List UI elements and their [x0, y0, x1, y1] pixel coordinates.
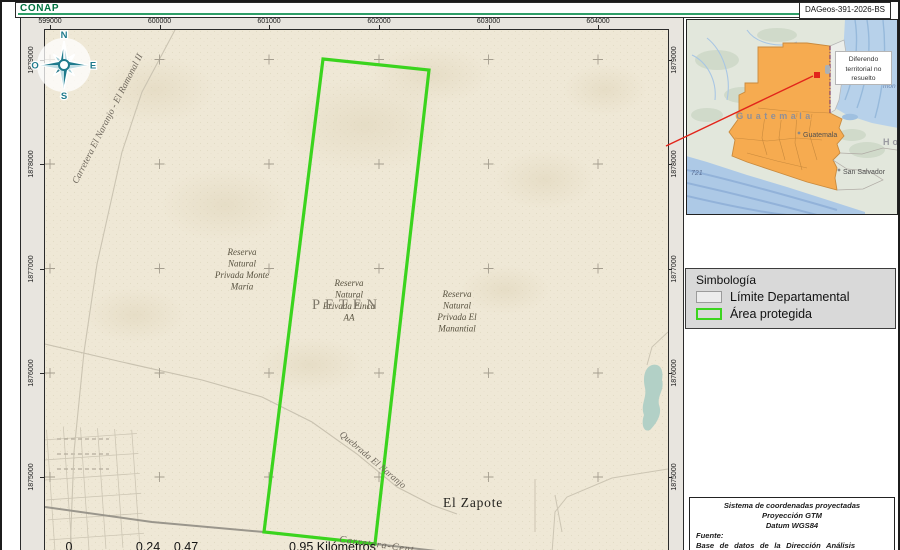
compass-s: S — [61, 91, 67, 102]
y-tick-label-right: 1875000 — [671, 455, 679, 499]
inset-san-salvador-label: San Salvador — [843, 169, 886, 176]
y-tick-label-right: 1876000 — [671, 351, 679, 395]
inset-depth-label: 721 — [691, 170, 703, 177]
site-marker — [814, 72, 820, 78]
crs-title: Sistema de coordenadas proyectadas — [696, 501, 888, 511]
border-marker-icon — [825, 65, 830, 74]
scale-047: 0.47 — [174, 540, 198, 550]
y-tick-label-left: 1875000 — [28, 455, 36, 499]
legend-item-label: Área protegida — [730, 307, 812, 321]
y-tick-label-right: 1877000 — [671, 247, 679, 291]
x-tick-label: 603000 — [467, 18, 511, 25]
compass-o: O — [31, 61, 38, 72]
protected-area-swatch — [696, 308, 722, 320]
x-tick-label: 602000 — [357, 18, 401, 25]
callout-line: territorial no — [836, 65, 891, 75]
label-department-peten: PETÉN — [312, 296, 382, 313]
legend-item-area-protegida: Área protegida — [696, 307, 895, 321]
x-tick-label: 599000 — [28, 18, 72, 25]
source-text: Base de datos de la Dirección Análisis G… — [696, 541, 888, 550]
scale-095-km: 0.95 Kilómetros — [289, 540, 376, 550]
x-tick-label: 601000 — [247, 18, 291, 25]
y-tick-label-left: 1877000 — [28, 247, 36, 291]
document-id-box: DAGeos-391-2026-BS — [799, 2, 891, 19]
callout-line: Diferendo — [836, 55, 891, 65]
label-el-zapote: El Zapote — [443, 495, 503, 510]
y-tick-label-left: 1878000 — [28, 142, 36, 186]
crs-datum: Datum WGS84 — [696, 521, 888, 531]
document-id: DAGeos-391-2026-BS — [805, 5, 885, 14]
crs-projection: Proyección GTM — [696, 511, 888, 521]
main-map: ReservaNaturalPrivada MonteMaría Reserva… — [45, 30, 668, 550]
compass-rose: N E S O — [29, 28, 99, 102]
inset-city-dot — [798, 132, 801, 135]
dispute-callout: Diferendo territorial no resuelto — [835, 51, 892, 85]
callout-line: resuelto — [836, 74, 891, 84]
map-document-page: CONAP DAGeos-391-2026-BS 599000600000601… — [0, 0, 900, 550]
inset-city2-dot — [838, 169, 841, 172]
inset-honduras-fragment: Ho — [883, 137, 897, 147]
legend: Simbología Límite Departamental Área pro… — [685, 268, 896, 329]
compass-e: E — [90, 61, 96, 72]
y-tick-label-left: 1876000 — [28, 351, 36, 395]
inset-map-svg: Guatemala Guatemala San Salvador Ho 721 … — [687, 20, 897, 214]
legend-item-label: Límite Departamental — [730, 290, 850, 304]
header-band: CONAP — [15, 2, 889, 18]
source-label: Fuente: — [696, 531, 888, 541]
y-tick-label-right: 1879000 — [671, 38, 679, 82]
inset-lake-izabal — [842, 114, 858, 120]
y-tick-label-right: 1878000 — [671, 142, 679, 186]
label-reserva-el-manantial: ReservaNaturalPrivada ElManantial — [436, 289, 477, 334]
header-green-rule — [18, 13, 886, 15]
legend-title: Simbología — [696, 273, 895, 287]
x-tick-label: 604000 — [576, 18, 620, 25]
scale-zero: 0 — [66, 540, 73, 550]
x-tick-label: 600000 — [138, 18, 182, 25]
map-canvas: ReservaNaturalPrivada MonteMaría Reserva… — [44, 29, 669, 550]
inset-country-label: Guatemala — [736, 111, 814, 121]
departmental-limit-swatch — [696, 291, 722, 303]
source-info-box: Sistema de coordenadas proyectadas Proye… — [689, 497, 895, 550]
inset-locator-map: Guatemala Guatemala San Salvador Ho 721 … — [686, 19, 898, 215]
scale-024: 0.24 — [136, 540, 160, 550]
inset-city-label: Guatemala — [803, 132, 837, 139]
compass-n: N — [61, 30, 68, 41]
legend-item-limite: Límite Departamental — [696, 290, 895, 304]
